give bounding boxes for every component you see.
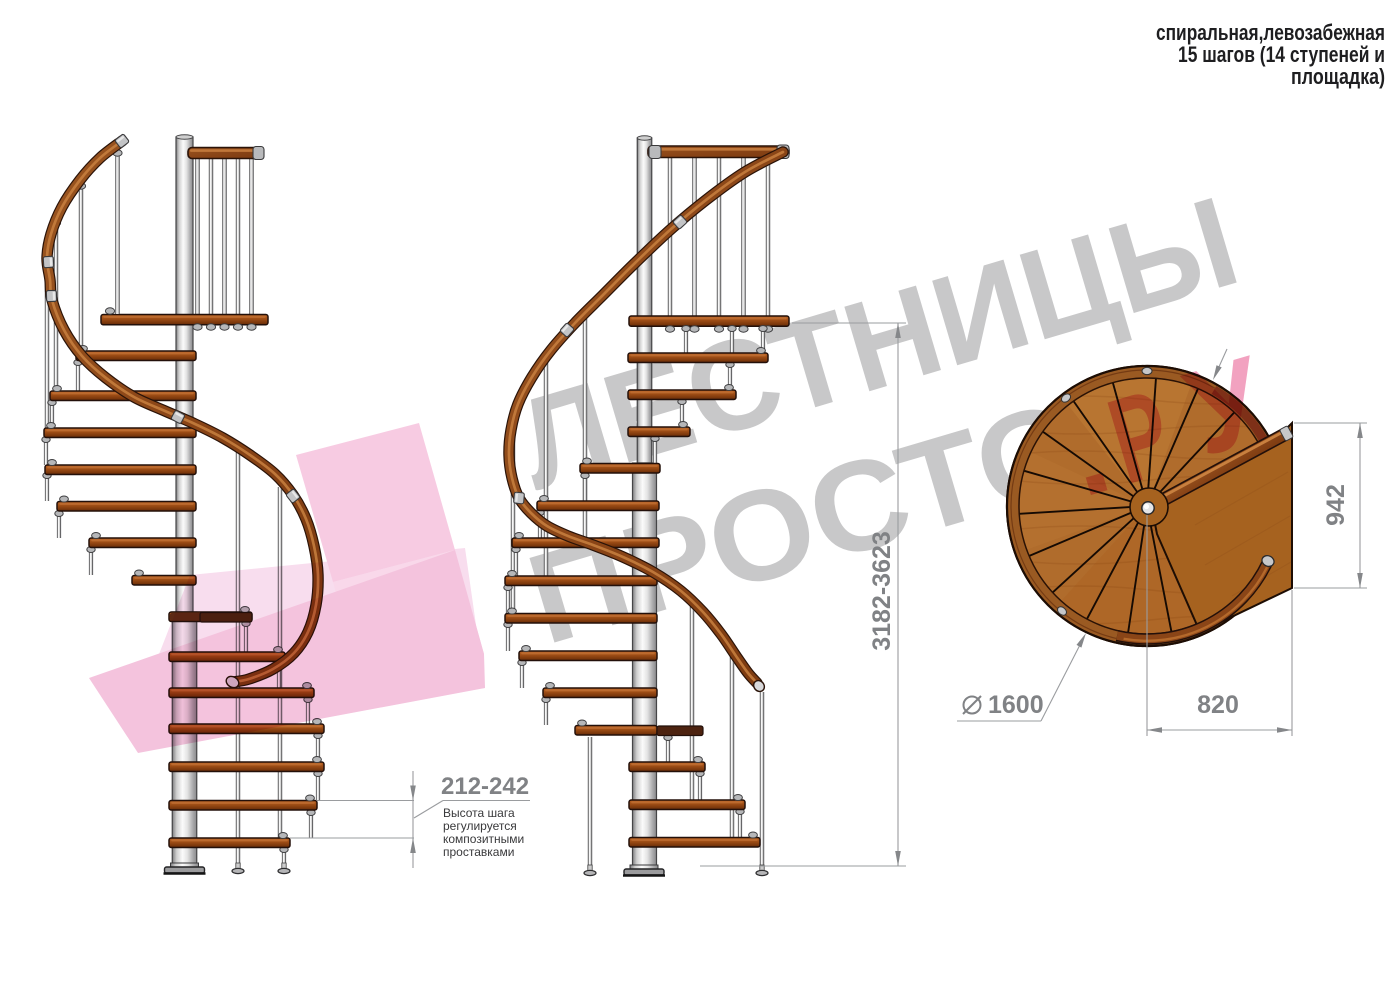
svg-text:820: 820 bbox=[1197, 691, 1239, 719]
svg-text:проставками: проставками bbox=[443, 845, 514, 859]
svg-text:Высота шага: Высота шага bbox=[443, 806, 515, 820]
svg-text:площадка): площадка) bbox=[1291, 64, 1385, 89]
svg-text:212-242: 212-242 bbox=[441, 773, 529, 800]
svg-text:3182-3623: 3182-3623 bbox=[868, 531, 896, 651]
svg-text:композитными: композитными bbox=[443, 832, 524, 846]
svg-text:регулируется: регулируется bbox=[443, 819, 517, 833]
svg-text:942: 942 bbox=[1322, 484, 1350, 526]
svg-text:1600: 1600 bbox=[988, 691, 1044, 719]
